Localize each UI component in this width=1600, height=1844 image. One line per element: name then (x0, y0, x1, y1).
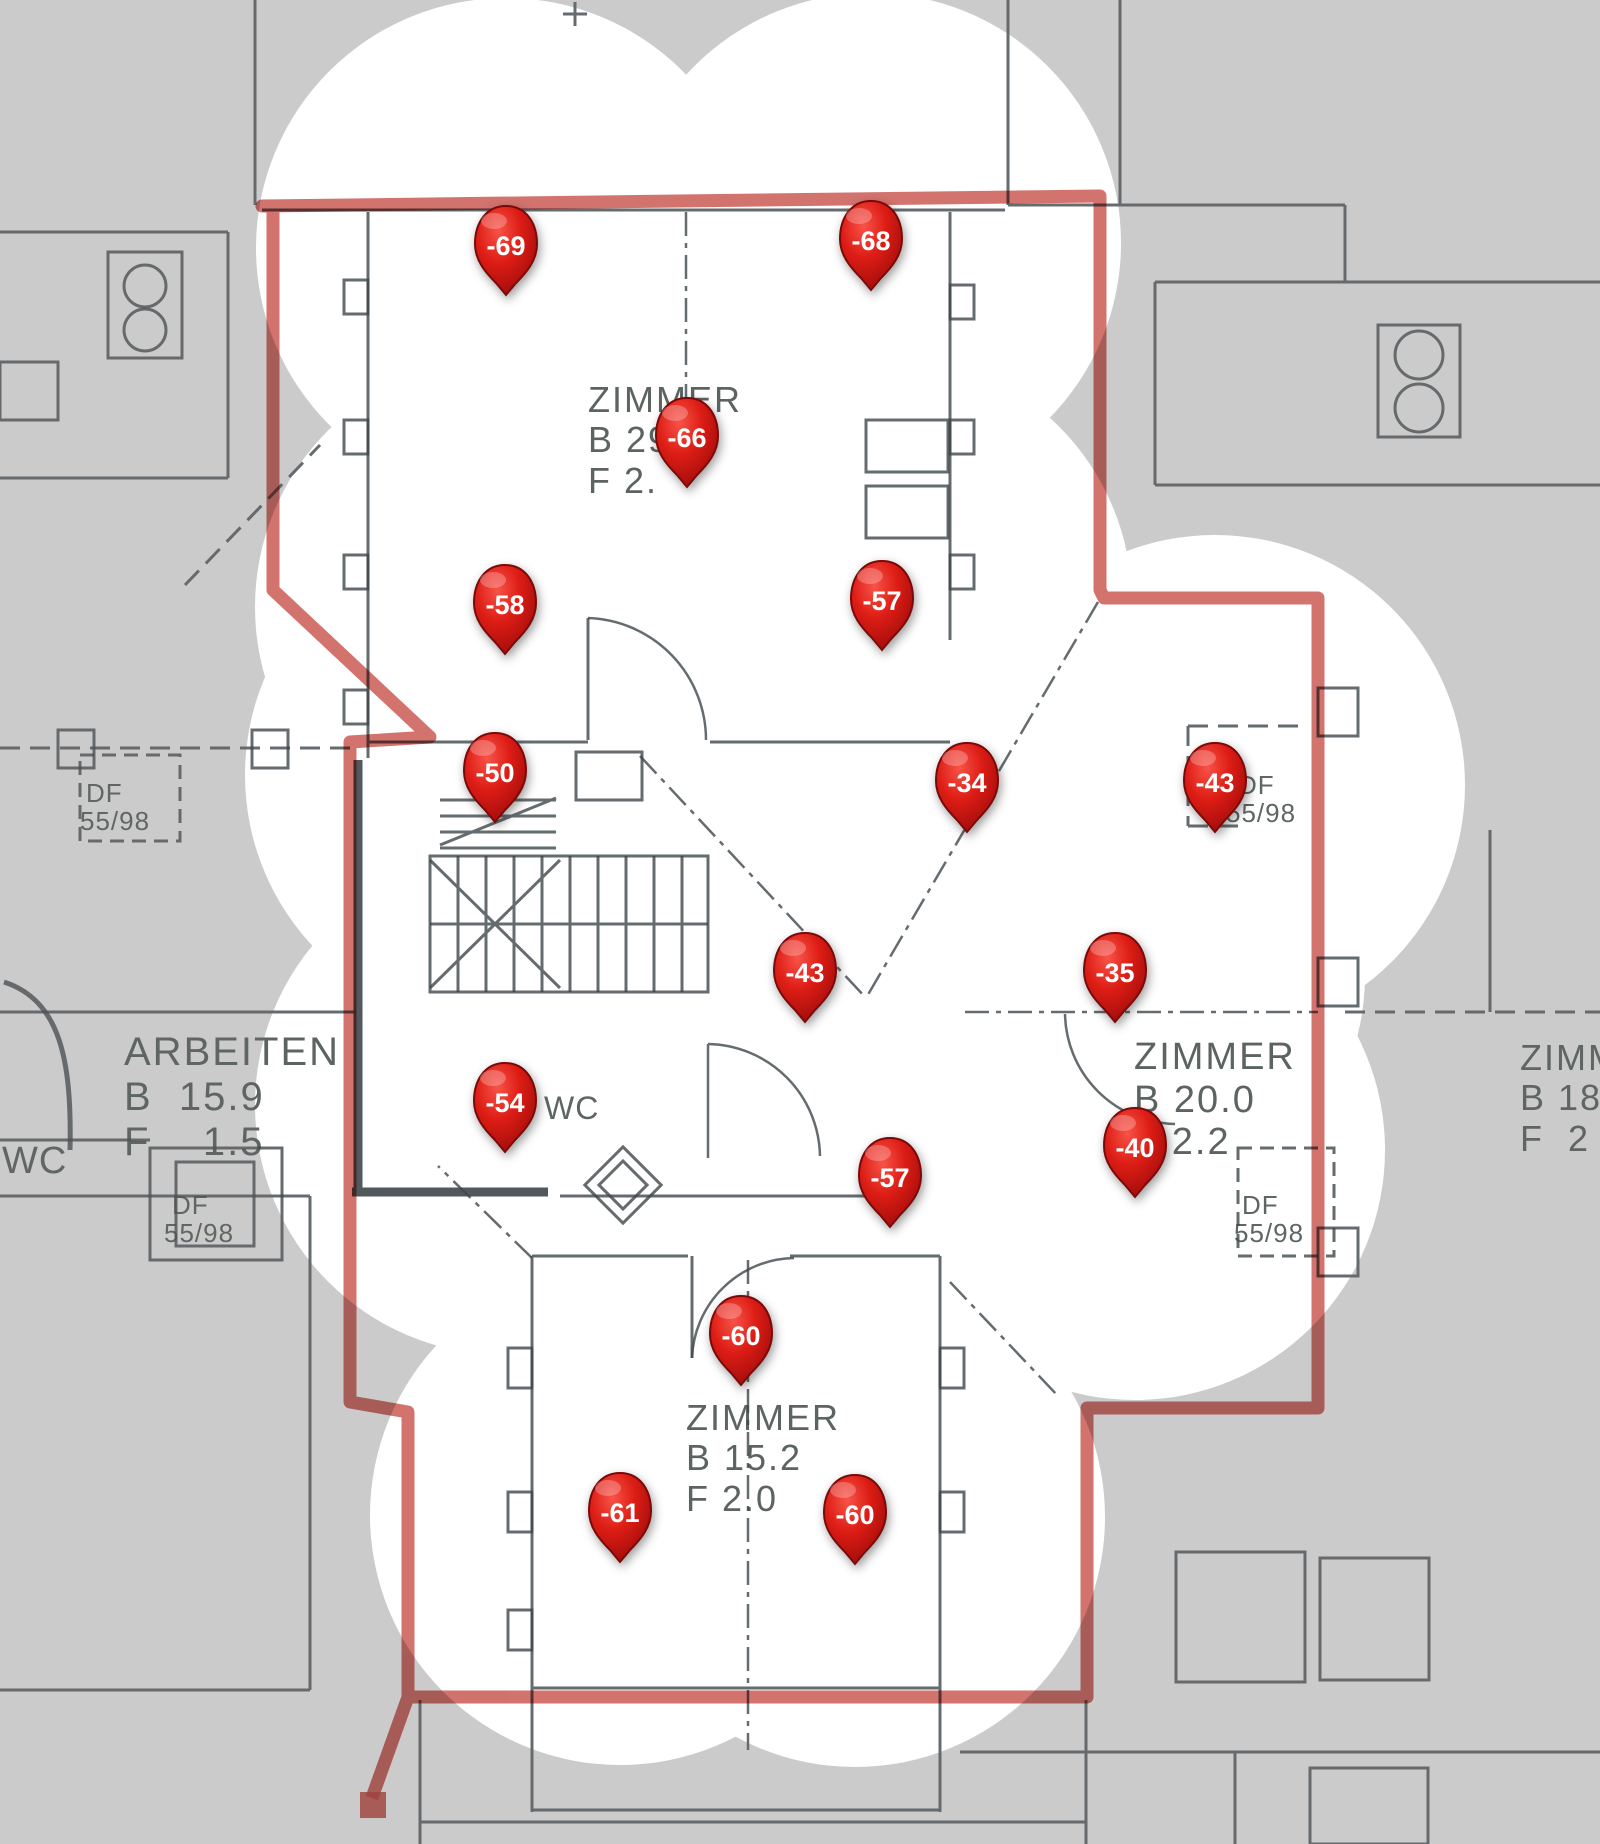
signal-pin[interactable]: -40 (1098, 1102, 1172, 1202)
signal-pin[interactable]: -60 (704, 1290, 778, 1390)
signal-value: -57 (862, 586, 901, 616)
pin-gloss (716, 1303, 742, 1319)
signal-value: -35 (1095, 958, 1134, 988)
pin-gloss (662, 405, 688, 421)
pin-gloss (1190, 750, 1216, 766)
signal-pin[interactable]: -57 (845, 555, 919, 655)
signal-value: -54 (485, 1088, 524, 1118)
signal-value: -43 (785, 958, 824, 988)
signal-pin[interactable]: -43 (1178, 737, 1252, 837)
signal-pin[interactable]: -66 (650, 392, 724, 492)
signal-pin[interactable]: -58 (468, 559, 542, 659)
signal-value: -69 (486, 231, 525, 261)
signal-pin[interactable]: -60 (818, 1469, 892, 1569)
signal-value: -60 (835, 1500, 874, 1530)
signal-value: -50 (475, 758, 514, 788)
signal-pin[interactable]: -54 (468, 1057, 542, 1157)
pin-gloss (942, 750, 968, 766)
pin-gloss (865, 1145, 891, 1161)
pin-gloss (830, 1482, 856, 1498)
signal-value: -40 (1115, 1133, 1154, 1163)
signal-value: -68 (851, 226, 890, 256)
pin-gloss (1110, 1115, 1136, 1131)
pin-gloss (780, 940, 806, 956)
signal-pin[interactable]: -43 (768, 927, 842, 1027)
pin-gloss (846, 208, 872, 224)
pin-gloss (480, 1070, 506, 1086)
pin-gloss (480, 572, 506, 588)
signal-value: -61 (600, 1498, 639, 1528)
signal-value: -58 (485, 590, 524, 620)
signal-pin[interactable]: -61 (583, 1467, 657, 1567)
pin-gloss (595, 1480, 621, 1496)
signal-value: -34 (947, 768, 986, 798)
pin-gloss (470, 740, 496, 756)
signal-pin[interactable]: -50 (458, 727, 532, 827)
signal-value: -57 (870, 1163, 909, 1193)
signal-pin[interactable]: -69 (469, 200, 543, 300)
pin-gloss (857, 568, 883, 584)
signal-pin[interactable]: -68 (834, 195, 908, 295)
pins-layer: -69-68-66-58-57-50-34-43-43-35-54-40-57-… (0, 0, 1600, 1844)
signal-value: -43 (1195, 768, 1234, 798)
signal-pin[interactable]: -57 (853, 1132, 927, 1232)
signal-pin[interactable]: -34 (930, 737, 1004, 837)
pin-gloss (481, 213, 507, 229)
pin-gloss (1090, 940, 1116, 956)
signal-pin[interactable]: -35 (1078, 927, 1152, 1027)
wifi-heatmap-survey: ZIMMERB 29F 2.ARBEITENB 15.9F 1.5ZIMMERB… (0, 0, 1600, 1844)
signal-value: -66 (667, 423, 706, 453)
signal-value: -60 (721, 1321, 760, 1351)
